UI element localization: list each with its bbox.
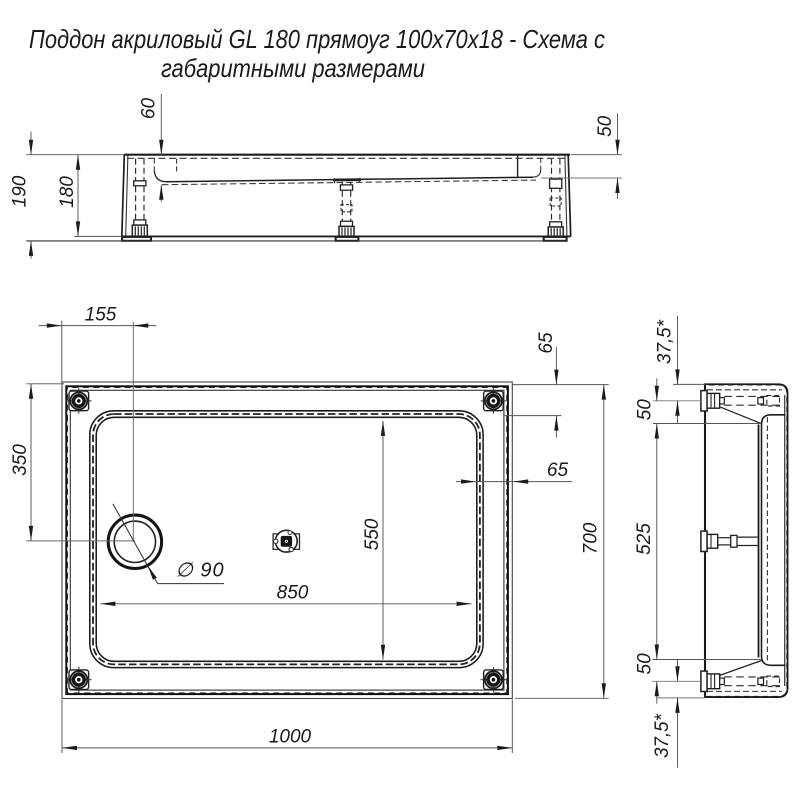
svg-text:525: 525 [634, 523, 655, 555]
svg-text:190: 190 [10, 175, 31, 207]
svg-text:37,5*: 37,5* [654, 319, 675, 364]
svg-text:50: 50 [595, 115, 616, 137]
svg-text:550: 550 [362, 518, 383, 550]
svg-text:700: 700 [581, 522, 602, 554]
svg-text:155: 155 [85, 304, 117, 325]
svg-text:350: 350 [10, 444, 31, 476]
svg-text:Поддон акриловый GL 180 прямо: Поддон акриловый GL 180 прямоуг 100х70х1… [29, 24, 605, 54]
svg-text:1000: 1000 [269, 727, 312, 748]
svg-text:габаритными размерами: габаритными размерами [161, 53, 425, 83]
svg-text:50: 50 [634, 399, 655, 421]
svg-text:60: 60 [138, 98, 159, 120]
svg-text:∅ 90: ∅ 90 [175, 560, 224, 582]
svg-text:65: 65 [536, 332, 557, 354]
svg-text:37,5*: 37,5* [652, 713, 673, 758]
svg-text:850: 850 [277, 583, 309, 604]
svg-text:180: 180 [57, 176, 78, 208]
svg-text:50: 50 [634, 653, 655, 675]
svg-text:65: 65 [547, 460, 569, 481]
